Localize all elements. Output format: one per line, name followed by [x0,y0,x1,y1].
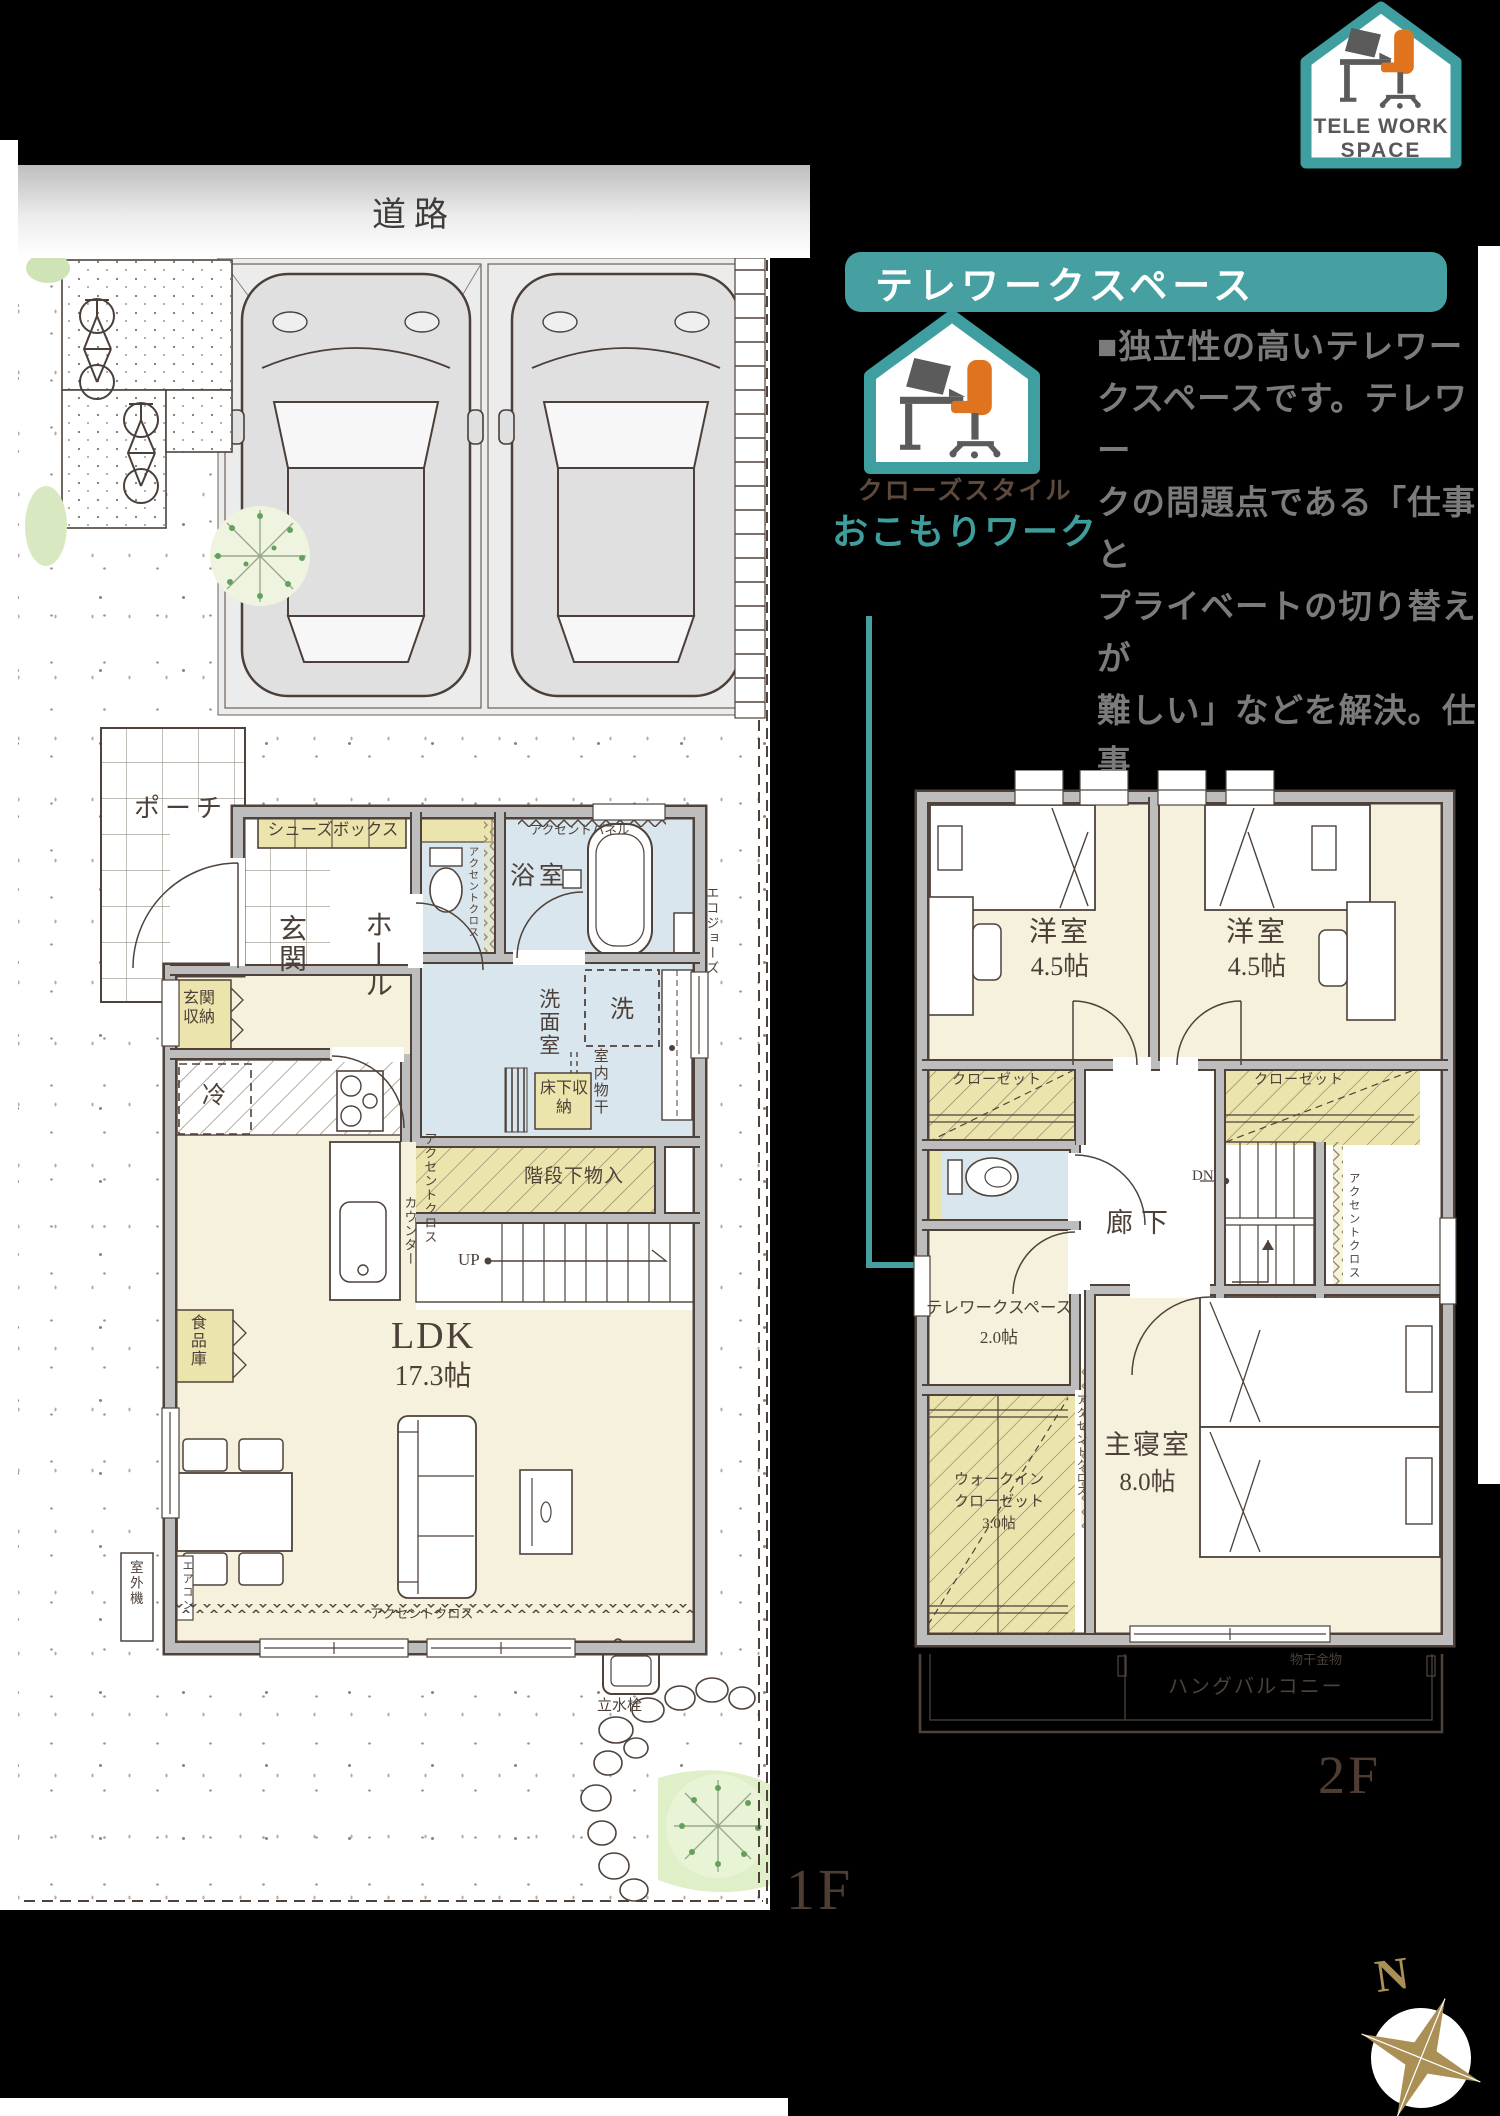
floorplan-1f-drawing [18,258,770,1910]
road-label: 道路 [372,187,456,236]
room-label-telework: テレワークスペース [914,1298,1084,1317]
bottom-margin [0,2098,788,2116]
room-label-master: 主寝室 [1080,1430,1215,1462]
badge-text-line2: SPACE [1341,139,1422,162]
bed-right [1205,805,1370,910]
room-label-eco-jozu: エコジョーズ [704,886,719,976]
room-label-accent-cloth-toilet: アクセントクロス [466,846,478,938]
floorplan-2f: 洋室 4.5帖 洋室 4.5帖 クローゼット クローゼット 廊下 DN アクセン… [900,770,1460,1750]
room-label-accent-cloth-living: アクセントクロス [370,1606,473,1621]
room-label-up: UP [458,1250,480,1270]
room-label-shoes-box: シューズボックス [260,820,406,839]
room-label-ldk: LDK [363,1314,503,1359]
room-label-bedroom-right: 洋室 [1172,916,1342,949]
feature-banner-title: テレワークスペース [875,255,1256,310]
compass-north-label: N [1372,1947,1412,2002]
room-label-telework-size: 2.0帖 [914,1328,1084,1348]
room-label-bathroom: 浴室 [510,862,568,892]
room-label-hall: ホール [360,910,393,1000]
style-name-label: おこもりワーク [832,503,1098,555]
room-label-fridge: 冷 [202,1082,226,1110]
style-tag-label: クローズスタイル [840,471,1090,507]
tree-icon [658,1770,770,1892]
room-label-down: DN [1192,1168,1214,1186]
site-plan-1f: ポーチ シューズボックス 玄関 ホール 玄関収納 アクセントクロス 浴室 アクセ… [18,258,770,1910]
room-label-porch: ポーチ [134,794,227,825]
room-label-closet-right: クローゼット [1254,1073,1344,1090]
room-label-drying-fixture: 物干金物 [1290,1652,1342,1667]
room-label-hallway: 廊下 [1106,1208,1176,1240]
room-label-entrance: 玄関 [274,914,307,974]
room-label-washer: 洗 [610,996,634,1024]
room-label-balcony: ハングバルコニー [1168,1676,1344,1700]
parking-area [218,258,765,718]
room-label-washroom: 洗面室 [536,988,561,1057]
left-margin [0,140,18,1910]
telework-space-badge: TELE WORK SPACE [1296,0,1466,170]
room-label-wic-line1: ウォークイン [928,1472,1070,1490]
compass: N [1342,1938,1497,2116]
room-label-pantry: 食品庫 [186,1314,205,1368]
floorplan-advert: 道路 [0,0,1500,2116]
sofa [398,1416,476,1598]
tree-icon [210,506,310,606]
feature-house-icon [862,310,1042,475]
room-label-wic-line2: クローゼット [928,1494,1070,1512]
toilet-2f [948,1158,1018,1196]
room-label-ldk-size: 17.3帖 [363,1360,503,1393]
approach-pads [62,260,232,528]
room-label-accent-cloth-master: アクセントクロス [1074,1394,1087,1498]
room-label-bedroom-left: 洋室 [975,916,1145,949]
tv-board [520,1470,572,1554]
floor1-label: 1F [786,1856,853,1923]
room-label-wic-size: 3.0帖 [928,1516,1070,1534]
room-label-outdoor-unit: 室外機 [127,1560,143,1607]
room-label-accent-cloth-stairs: アクセントクロス [1346,1172,1360,1280]
room-label-water-tap: 立水栓 [597,1698,642,1716]
room-label-counter: カウンター [402,1196,417,1266]
floor2-label: 2F [1318,1744,1381,1806]
room-label-bedroom-left-size: 4.5帖 [975,952,1145,983]
connector-line-vertical [866,616,872,1268]
room-label-accent-panel: アクセントパネル [530,823,629,838]
room-label-master-size: 8.0帖 [1080,1468,1215,1498]
master-beds [1200,1297,1440,1557]
room-label-indoor-drying: 室内物干 [590,1048,608,1116]
badge-text-line1: TELE WORK [1314,115,1449,138]
room-label-aircon: エアコン [180,1560,193,1612]
room-label-under-stairs-storage: 階段下物入 [524,1166,624,1188]
room-label-accent-cloth-kitchen: アクセントクロス [422,1132,437,1244]
room-label-bedroom-right-size: 4.5帖 [1172,952,1342,983]
room-label-closet-left: クローゼット [952,1073,1042,1090]
room-label-entrance-storage: 玄関収納 [179,990,219,1028]
feature-banner: テレワークスペース [845,252,1447,312]
car-icon [229,274,483,696]
road-band: 道路 [18,165,810,258]
compass-star [1342,1975,1497,2116]
room-label-underfloor-storage: 床下収納 [540,1080,588,1118]
bed-left [930,805,1095,910]
car-icon [499,274,753,696]
